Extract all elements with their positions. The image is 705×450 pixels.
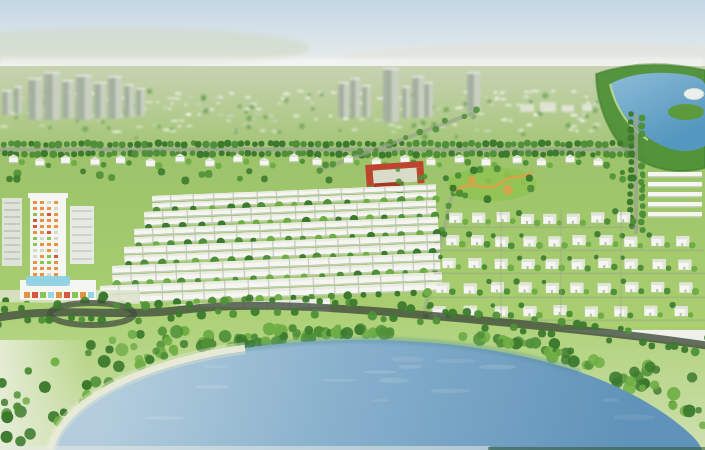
masterplan-scene <box>0 0 705 450</box>
aerial-render-image <box>0 0 705 450</box>
